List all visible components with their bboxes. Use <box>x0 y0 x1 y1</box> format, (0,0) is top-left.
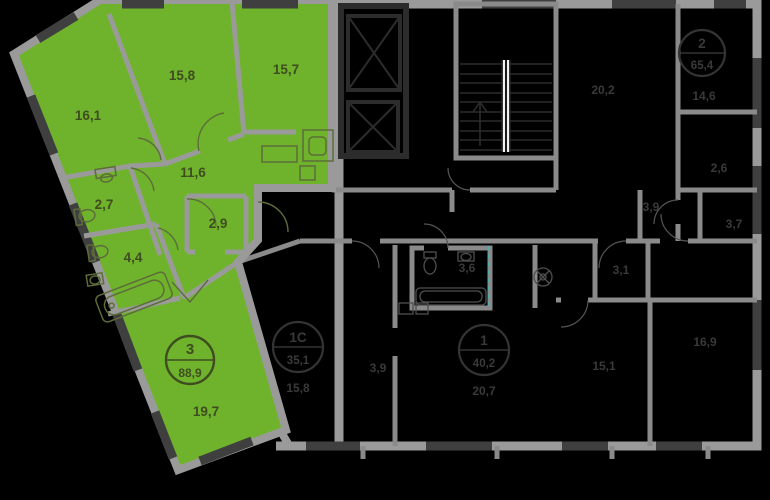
badge-total-area: 35,1 <box>287 355 310 367</box>
room-area-label: 2,9 <box>209 216 228 231</box>
badge-total-area: 88,9 <box>178 366 202 380</box>
room-area-label: 15,1 <box>592 359 616 373</box>
room-area-label: 16,1 <box>75 108 102 123</box>
room-area-label: 2,7 <box>95 197 114 212</box>
room-area-label: 15,8 <box>169 68 196 83</box>
badge-total-area: 40,2 <box>473 358 495 370</box>
floor-plan-stage: 20,2 3,9 2,6 3,7 3,1 3,6 3,9 15,1 16,9 2… <box>0 0 770 500</box>
room-area-label: 4,4 <box>124 250 143 265</box>
room-area-label: 14,6 <box>692 89 716 103</box>
room-area-label: 3,9 <box>370 361 387 375</box>
room-area-label: 2,6 <box>711 161 728 175</box>
badge-rooms-count: 3 <box>186 341 194 358</box>
badge-total-area: 65,4 <box>691 60 714 72</box>
room-area-label: 15,7 <box>273 62 299 77</box>
apartment-badge-selected[interactable]: 3 88,9 <box>166 336 214 384</box>
floor-plan-svg: 20,2 3,9 2,6 3,7 3,1 3,6 3,9 15,1 16,9 2… <box>0 0 770 500</box>
room-area-label: 3,1 <box>613 263 630 277</box>
room-area-label: 20,2 <box>591 83 615 97</box>
room-area-label: 15,8 <box>286 381 310 395</box>
room-area-label: 16,9 <box>693 335 717 349</box>
room-area-label: 3,6 <box>459 261 476 275</box>
room-area-label: 3,9 <box>643 200 660 214</box>
room-area-label: 19,7 <box>193 404 219 419</box>
badge-rooms-count: 2 <box>698 36 706 51</box>
badge-rooms-count: 1С <box>289 330 307 345</box>
room-area-label: 3,7 <box>726 217 743 231</box>
badge-rooms-count: 1 <box>480 333 488 348</box>
room-area-label: 20,7 <box>472 384 496 398</box>
room-area-label: 11,6 <box>180 165 206 180</box>
